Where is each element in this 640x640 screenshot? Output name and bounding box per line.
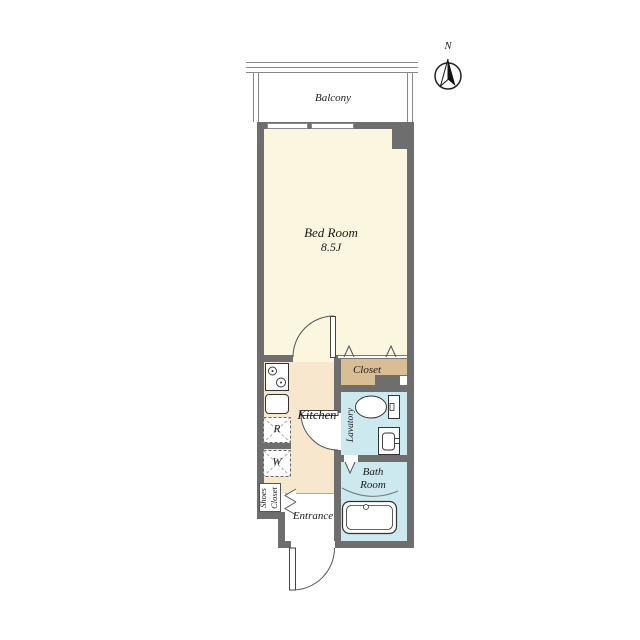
bathtub-icon — [343, 502, 397, 534]
entrance-label: Entrance — [284, 510, 342, 522]
sink-icon — [266, 395, 289, 414]
washer-label: W — [263, 456, 291, 468]
compass-north-label: N — [438, 41, 458, 53]
bathroom-label-line1: Bath — [344, 466, 402, 479]
toilet-icon — [356, 396, 400, 419]
stove-icon — [266, 364, 289, 391]
bathroom-label-line2: Room — [344, 479, 402, 492]
bathroom-label: Bath Room — [344, 466, 402, 492]
compass-icon — [435, 59, 461, 89]
bedroom-label: Bed Room — [271, 226, 391, 240]
bedroom-size-label: 8.5J — [271, 241, 391, 254]
lavatory-label: Lavatory — [346, 398, 358, 452]
refrigerator-label: R — [263, 423, 291, 435]
shoes-closet-label-line1: Shoes — [258, 482, 269, 514]
washbasin-icon — [379, 428, 400, 455]
bedroom-door-icon — [293, 316, 336, 358]
balcony-label: Balcony — [283, 92, 383, 104]
shoes-closet-label: Shoes Closet — [258, 482, 282, 514]
floor-plan: Balcony — [0, 0, 640, 640]
entrance-door-icon — [290, 548, 335, 590]
closet-folding-door-icon — [344, 346, 396, 357]
closet-label: Closet — [340, 364, 394, 376]
shoes-closet-label-line2: Closet — [269, 482, 280, 514]
kitchen-label: Kitchen — [287, 409, 347, 423]
